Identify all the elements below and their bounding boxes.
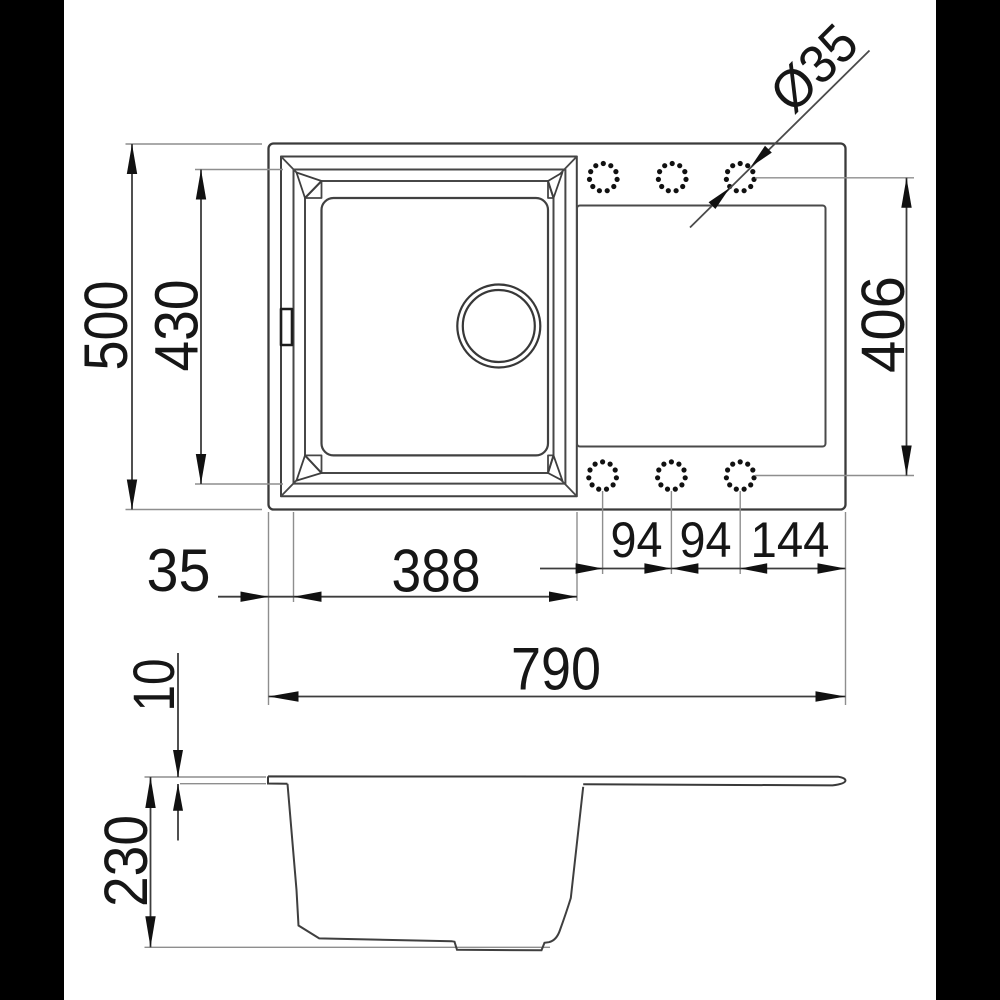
svg-text:35: 35 — [147, 537, 211, 604]
svg-text:10: 10 — [122, 659, 187, 712]
svg-text:94: 94 — [680, 512, 732, 568]
svg-text:144: 144 — [751, 512, 830, 568]
svg-text:430: 430 — [143, 280, 211, 372]
svg-text:230: 230 — [92, 815, 160, 907]
svg-text:388: 388 — [392, 538, 481, 605]
svg-text:790: 790 — [511, 636, 601, 703]
svg-text:406: 406 — [849, 276, 917, 373]
svg-text:500: 500 — [72, 281, 140, 371]
svg-text:94: 94 — [611, 512, 663, 568]
